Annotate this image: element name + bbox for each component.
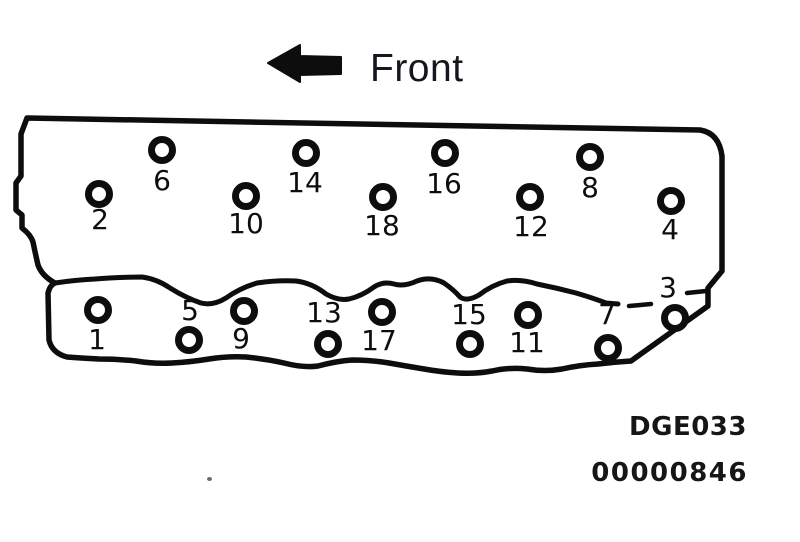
bolt-hole-13 [314, 330, 342, 358]
bolt-hole-10 [232, 182, 260, 210]
bolt-hole-18 [369, 183, 397, 211]
front-label: Front [370, 49, 464, 88]
bolt-hole-17 [368, 298, 396, 326]
bolt-hole-6 [148, 136, 176, 164]
bolt-hole-1 [84, 296, 112, 324]
bolt-label-4: 4 [661, 216, 679, 244]
bolt-label-5: 5 [181, 297, 199, 325]
bolt-hole-8 [576, 143, 604, 171]
bolt-hole-9 [230, 297, 258, 325]
bolt-label-13: 13 [306, 299, 342, 327]
bolt-label-7: 7 [598, 301, 616, 329]
scan-speck [207, 477, 212, 481]
bolt-hole-11 [514, 301, 542, 329]
bolt-label-17: 17 [361, 327, 397, 355]
figure-code: DGE033 [629, 412, 747, 442]
leader-dash-right [687, 291, 706, 293]
bolt-label-8: 8 [581, 174, 599, 202]
bolt-label-18: 18 [364, 212, 400, 240]
bolt-hole-5 [175, 326, 203, 354]
bolt-hole-3 [661, 304, 689, 332]
bolt-label-11: 11 [509, 329, 545, 357]
doc-number: 00000846 [591, 458, 748, 488]
bolt-label-16: 16 [426, 170, 462, 198]
bolt-label-9: 9 [232, 325, 250, 353]
bolt-hole-15 [456, 330, 484, 358]
scanned-diagram-page: Front 123456789101112131415161718 DGE033… [0, 0, 800, 542]
bolt-label-15: 15 [451, 301, 487, 329]
front-arrow-icon [268, 45, 341, 82]
leader-dash-left [629, 304, 651, 306]
bolt-hole-14 [292, 139, 320, 167]
bolt-label-10: 10 [228, 210, 264, 238]
bolt-hole-12 [516, 183, 544, 211]
bolt-hole-16 [431, 139, 459, 167]
bolt-label-6: 6 [153, 167, 171, 195]
bolt-label-14: 14 [287, 169, 323, 197]
bolt-label-12: 12 [513, 213, 549, 241]
bolt-label-3: 3 [659, 274, 677, 302]
bolt-label-1: 1 [88, 326, 106, 354]
bolt-hole-4 [657, 187, 685, 215]
bolt-label-2: 2 [91, 206, 109, 234]
bolt-hole-7 [594, 334, 622, 362]
